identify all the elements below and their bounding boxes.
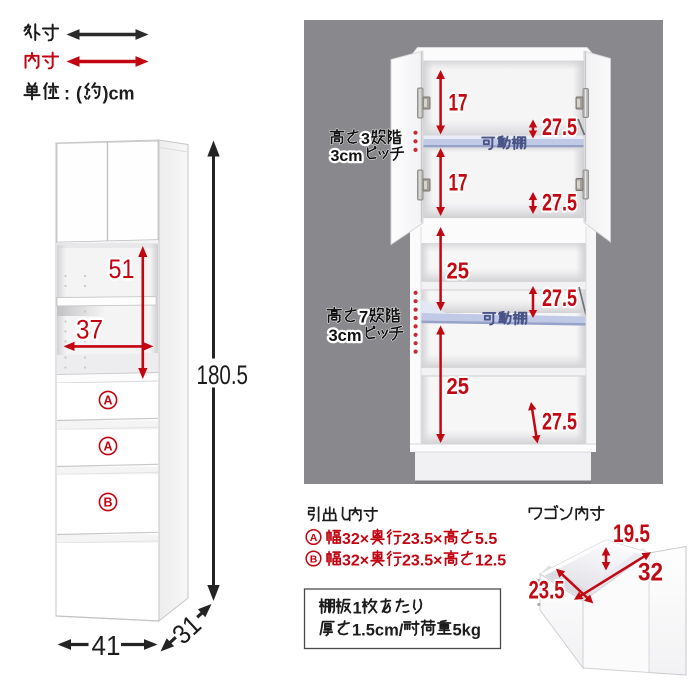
svg-text:27.5: 27.5: [542, 409, 577, 436]
svg-text:1.5cm/: 1.5cm/: [352, 622, 404, 640]
svg-text:51: 51: [109, 254, 135, 284]
svg-text:B: B: [310, 554, 318, 566]
svg-text:23.5: 23.5: [529, 577, 565, 605]
svg-text:12.5: 12.5: [475, 553, 506, 570]
svg-text:25: 25: [447, 373, 470, 399]
svg-text:23.5×: 23.5×: [402, 531, 442, 548]
svg-text:(: (: [76, 83, 82, 103]
svg-text:3cm: 3cm: [329, 327, 362, 345]
svg-text:5.5: 5.5: [475, 531, 497, 548]
svg-text:23.5×: 23.5×: [402, 553, 442, 570]
svg-text:3cm: 3cm: [331, 148, 363, 165]
svg-text:1: 1: [353, 600, 362, 618]
svg-text:32×: 32×: [342, 553, 369, 570]
svg-text::: :: [64, 83, 70, 103]
svg-text:A: A: [310, 532, 318, 544]
svg-text:3: 3: [361, 131, 370, 148]
svg-text:)cm: )cm: [103, 83, 135, 103]
svg-text:A: A: [103, 394, 112, 408]
svg-text:180.5: 180.5: [197, 360, 249, 390]
svg-text:17: 17: [449, 90, 468, 117]
svg-text:25: 25: [447, 258, 470, 284]
svg-text:37: 37: [76, 315, 103, 345]
svg-text:32×: 32×: [342, 531, 369, 548]
svg-text:17: 17: [449, 170, 468, 197]
svg-text:32: 32: [638, 559, 663, 587]
svg-text:19.5: 19.5: [613, 520, 650, 548]
svg-text:A: A: [103, 440, 112, 454]
svg-text:5kg: 5kg: [453, 622, 481, 640]
svg-text:27.5: 27.5: [542, 285, 577, 312]
svg-text:7: 7: [359, 309, 368, 327]
svg-text:27.5: 27.5: [542, 114, 577, 141]
svg-text:41: 41: [92, 630, 121, 661]
svg-text:27.5: 27.5: [542, 190, 577, 217]
svg-text:B: B: [103, 496, 112, 510]
